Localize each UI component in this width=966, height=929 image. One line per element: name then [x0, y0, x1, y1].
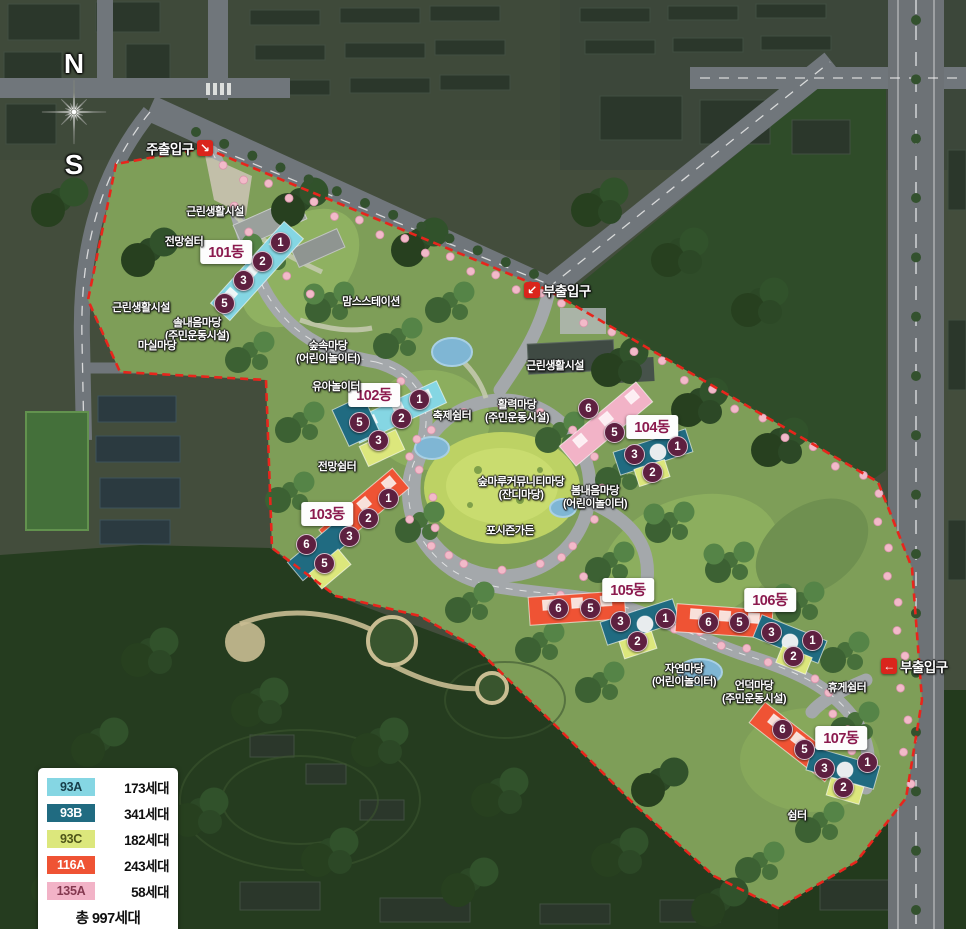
- unit-line-badge: 1: [857, 752, 878, 773]
- facility-label: 자연마당 (어린이놀이터): [652, 663, 716, 689]
- building-label: 104동: [626, 415, 678, 439]
- unit-line-badge: 6: [578, 398, 599, 419]
- legend: 93A173세대93B341세대93C182세대116A243세대135A58세…: [38, 768, 178, 929]
- unit-line-badge: 3: [610, 611, 631, 632]
- legend-row: 135A58세대: [47, 881, 169, 901]
- unit-line-badge: 6: [296, 534, 317, 555]
- unit-line-badge: 5: [729, 612, 750, 633]
- unit-line-badge: 2: [358, 508, 379, 529]
- unit-line-badge: 5: [349, 412, 370, 433]
- facility-label: 전망쉼터: [318, 461, 356, 474]
- unit-type-chip: 116A: [47, 856, 95, 874]
- unit-line-badge: 5: [794, 739, 815, 760]
- unit-line-badge: 5: [604, 422, 625, 443]
- building-label: 106동: [744, 588, 796, 612]
- unit-count: 341세대: [124, 803, 169, 823]
- building-label: 105동: [602, 578, 654, 602]
- building-label: 107동: [815, 726, 867, 750]
- unit-line-badge: 3: [368, 430, 389, 451]
- facility-label: 봄내음마당 (어린이놀이터): [563, 485, 627, 511]
- unit-line-badge: 1: [270, 232, 291, 253]
- entrance-label: 주출입구: [146, 138, 194, 158]
- legend-row: 93C182세대: [47, 829, 169, 849]
- legend-total: 총 997세대: [47, 907, 169, 928]
- unit-line-badge: 1: [802, 630, 823, 651]
- facility-label: 숲마루커뮤니티마당 (잔디마당): [478, 476, 565, 502]
- unit-line-badge: 3: [624, 444, 645, 465]
- entrance-arrow-icon: ↘: [197, 140, 213, 156]
- legend-row: 116A243세대: [47, 855, 169, 875]
- unit-count: 58세대: [131, 881, 169, 901]
- unit-line-badge: 2: [252, 251, 273, 272]
- entrance-arrow-icon: ←: [881, 658, 897, 674]
- unit-line-badge: 5: [214, 293, 235, 314]
- building-label: 103동: [301, 502, 353, 526]
- unit-line-badge: 1: [655, 608, 676, 629]
- entrance-label: 부출입구: [543, 280, 591, 300]
- unit-line-badge: 2: [391, 408, 412, 429]
- facility-label: 근린생활시설: [186, 206, 244, 219]
- unit-line-badge: 2: [627, 631, 648, 652]
- facility-label: 유아놀이터: [312, 381, 360, 394]
- unit-line-badge: 3: [761, 622, 782, 643]
- entrance-label: 부출입구: [900, 656, 948, 676]
- facility-label: 근린생활시설: [112, 302, 170, 315]
- unit-count: 173세대: [124, 777, 169, 797]
- unit-line-badge: 3: [814, 758, 835, 779]
- facility-label: 포시즌가든: [486, 525, 534, 538]
- unit-line-badge: 2: [783, 646, 804, 667]
- unit-line-badge: 5: [580, 598, 601, 619]
- unit-count: 182세대: [124, 829, 169, 849]
- legend-row: 93A173세대: [47, 777, 169, 797]
- building-label: 101동: [200, 240, 252, 264]
- unit-type-chip: 93C: [47, 830, 95, 848]
- unit-line-badge: 6: [698, 612, 719, 633]
- entrance-arrow-icon: ↙: [524, 282, 540, 298]
- facility-label: 활력마당 (주민운동시설): [485, 399, 549, 425]
- unit-type-chip: 135A: [47, 882, 95, 900]
- unit-line-badge: 6: [548, 598, 569, 619]
- facility-label: 축제쉼터: [433, 410, 471, 423]
- unit-line-badge: 2: [642, 462, 663, 483]
- unit-type-chip: 93A: [47, 778, 95, 796]
- facility-label: 언덕마당 (주민운동시설): [722, 680, 786, 706]
- unit-line-badge: 3: [233, 270, 254, 291]
- main-entrance: 주출입구↘: [146, 138, 213, 158]
- legend-row: 93B341세대: [47, 803, 169, 823]
- site-plan: N S 주출입구↘↙부출입구←부출입구101동1235102동1253103동1…: [0, 0, 966, 929]
- facility-label: 근린생활시설: [526, 360, 584, 373]
- unit-count: 243세대: [124, 855, 169, 875]
- unit-line-badge: 3: [339, 526, 360, 547]
- unit-line-badge: 1: [409, 389, 430, 410]
- unit-line-badge: 6: [772, 719, 793, 740]
- sub-entrance-right: ←부출입구: [881, 656, 948, 676]
- facility-label: 전망쉼터: [165, 236, 203, 249]
- facility-label: 휴게쉼터: [828, 682, 866, 695]
- unit-line-badge: 5: [314, 553, 335, 574]
- unit-line-badge: 1: [378, 488, 399, 509]
- facility-label: 쉼터: [787, 810, 806, 823]
- unit-line-badge: 2: [833, 777, 854, 798]
- facility-label: 마실마당: [138, 340, 176, 353]
- unit-type-chip: 93B: [47, 804, 95, 822]
- legend-rows: 93A173세대93B341세대93C182세대116A243세대135A58세…: [47, 777, 169, 901]
- unit-line-badge: 1: [667, 436, 688, 457]
- sub-entrance-top: ↙부출입구: [524, 280, 591, 300]
- facility-label: 맘스스테이션: [342, 296, 400, 309]
- facility-label: 숲속마당 (어린이놀이터): [296, 340, 360, 366]
